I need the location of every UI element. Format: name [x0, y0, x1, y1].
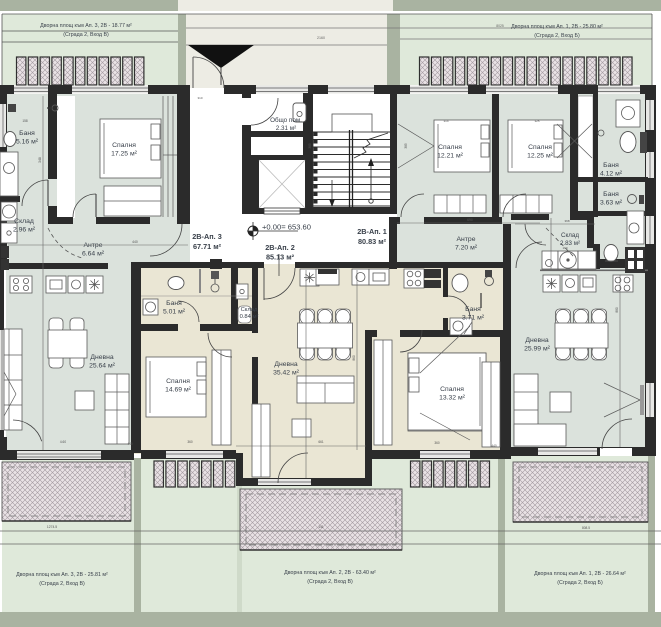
svg-text:Дворна площ към Ап. 3, 2В - 18: Дворна площ към Ап. 3, 2В - 18.77 м²	[40, 23, 132, 29]
svg-text:Дневна: Дневна	[525, 337, 549, 344]
svg-text:314: 314	[443, 119, 448, 123]
svg-text:2В-Ап. 3: 2В-Ап. 3	[192, 232, 222, 241]
svg-text:67.71 м²: 67.71 м²	[193, 242, 222, 251]
svg-text:860: 860	[352, 355, 356, 361]
svg-text:25.64 м²: 25.64 м²	[89, 363, 116, 370]
svg-text:310: 310	[197, 96, 202, 100]
svg-text:5.16 м²: 5.16 м²	[16, 139, 39, 146]
svg-text:348: 348	[38, 157, 42, 163]
svg-text:3.63 м²: 3.63 м²	[600, 200, 623, 207]
svg-text:1274.5: 1274.5	[47, 525, 57, 529]
svg-text:3.71 м²: 3.71 м²	[462, 315, 485, 322]
svg-text:Спалня: Спалня	[440, 386, 464, 393]
svg-text:12.21 м²: 12.21 м²	[437, 153, 464, 160]
svg-text:Дворна площ към Ап. 2, 2В - 63: Дворна площ към Ап. 2, 2В - 63.40 м²	[284, 570, 376, 576]
svg-text:(Сграда 2, Вход Б): (Сграда 2, Вход Б)	[534, 33, 580, 39]
svg-text:2160: 2160	[317, 36, 325, 40]
svg-text:12.25 м²: 12.25 м²	[527, 153, 554, 160]
svg-text:385: 385	[404, 143, 408, 149]
svg-text:(Сграда 2, Вход В): (Сграда 2, Вход В)	[39, 581, 85, 587]
svg-text:7.20 м²: 7.20 м²	[455, 245, 478, 252]
svg-text:690: 690	[467, 218, 473, 222]
svg-text:158: 158	[22, 119, 28, 123]
svg-text:Дворна площ към Ап. 1, 2В - 26: Дворна площ към Ап. 1, 2В - 26.64 м²	[534, 571, 626, 577]
svg-text:Спалня: Спалня	[166, 378, 190, 385]
svg-text:385: 385	[308, 143, 312, 149]
svg-text:Баня: Баня	[19, 130, 35, 137]
svg-text:17.25 м²: 17.25 м²	[111, 151, 138, 158]
svg-text:Дневна: Дневна	[90, 354, 114, 361]
svg-text:Склад: Склад	[241, 307, 258, 313]
svg-text:(Сграда 2, Вход В): (Сграда 2, Вход В)	[63, 32, 109, 38]
svg-text:440: 440	[491, 444, 497, 448]
svg-text:5.01 м²: 5.01 м²	[163, 309, 186, 316]
svg-text:13.32 м²: 13.32 м²	[439, 395, 466, 402]
svg-text:325: 325	[534, 119, 539, 123]
svg-text:Спалня: Спалня	[438, 144, 462, 151]
svg-text:Спалня: Спалня	[112, 142, 136, 149]
svg-text:6.64 м²: 6.64 м²	[82, 251, 105, 258]
svg-text:808.5: 808.5	[582, 526, 590, 530]
svg-text:(Сграда 2, Вход Б): (Сграда 2, Вход Б)	[557, 580, 603, 586]
svg-text:440: 440	[127, 442, 133, 446]
svg-text:80.83 м²: 80.83 м²	[358, 237, 387, 246]
svg-text:Баня: Баня	[603, 162, 619, 169]
svg-text:2.96 м²: 2.96 м²	[13, 227, 36, 234]
svg-text:14.69 м²: 14.69 м²	[165, 387, 192, 394]
svg-text:Дневна: Дневна	[274, 361, 298, 368]
svg-text:(Сграда 2, Вход В): (Сграда 2, Вход В)	[307, 579, 353, 585]
svg-text:2.31 м²: 2.31 м²	[276, 125, 296, 132]
svg-text:Склад: Склад	[561, 232, 579, 239]
svg-text:Баня: Баня	[465, 306, 481, 313]
svg-text:440: 440	[132, 240, 138, 244]
svg-text:Общо пом.: Общо пом.	[270, 116, 302, 124]
svg-text:2В-Ап. 1: 2В-Ап. 1	[357, 227, 387, 236]
svg-text:25.99 м²: 25.99 м²	[524, 346, 551, 353]
svg-text:Дворна площ към Ап. 1, 2В - 25: Дворна площ към Ап. 1, 2В - 25.80 м²	[511, 24, 603, 30]
svg-text:Дворна площ към Ап. 3, 2В - 25: Дворна площ към Ап. 3, 2В - 25.81 м²	[16, 572, 108, 578]
svg-text:360: 360	[187, 440, 193, 444]
svg-text:Баня: Баня	[166, 300, 182, 307]
svg-text:880: 880	[615, 307, 619, 313]
svg-text:0.84 м²: 0.84 м²	[240, 314, 259, 320]
svg-text:35.42 м²: 35.42 м²	[273, 370, 300, 377]
svg-text:Баня: Баня	[603, 191, 619, 198]
svg-text:+0.00= 653.60: +0.00= 653.60	[262, 223, 311, 232]
svg-text:141: 141	[318, 525, 324, 529]
svg-text:8025: 8025	[496, 24, 504, 28]
svg-text:Спалня: Спалня	[528, 144, 552, 151]
svg-text:2В-Ап. 2: 2В-Ап. 2	[265, 243, 295, 252]
svg-text:4.12 м²: 4.12 м²	[600, 171, 623, 178]
svg-text:661: 661	[318, 440, 324, 444]
svg-text:4.60: 4.60	[60, 440, 66, 444]
svg-text:Антре: Антре	[84, 242, 103, 249]
svg-text:85.13 м²: 85.13 м²	[266, 253, 295, 262]
svg-text:2.83 м²: 2.83 м²	[560, 240, 580, 247]
svg-text:Склад: Склад	[14, 218, 34, 225]
svg-text:368: 368	[564, 219, 569, 223]
svg-text:360: 360	[434, 441, 440, 445]
svg-text:Антре: Антре	[457, 236, 476, 243]
